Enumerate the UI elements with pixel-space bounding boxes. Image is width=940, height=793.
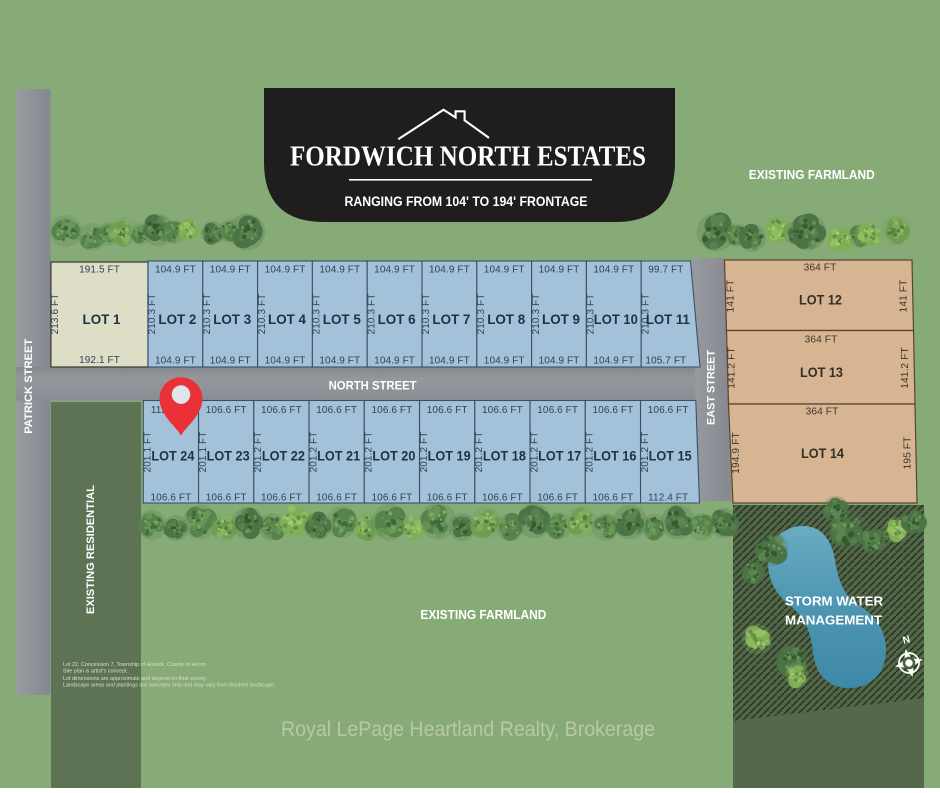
svg-text:104.9 FT: 104.9 FT (539, 355, 580, 366)
svg-text:LOT 1: LOT 1 (83, 311, 121, 327)
svg-text:210.3 FT: 210.3 FT (147, 294, 158, 335)
svg-text:194.9 FT: 194.9 FT (731, 432, 742, 474)
svg-text:LOT 19: LOT 19 (428, 448, 471, 464)
svg-text:106.6 FT: 106.6 FT (151, 493, 192, 504)
svg-text:LOT 10: LOT 10 (594, 311, 638, 327)
svg-text:210.3 FT: 210.3 FT (366, 294, 377, 335)
svg-text:364 FT: 364 FT (804, 262, 837, 273)
svg-text:104.9 FT: 104.9 FT (265, 355, 306, 366)
svg-text:LOT 3: LOT 3 (213, 311, 251, 327)
svg-text:Lot dimensions are approximate: Lot dimensions are approximate and depen… (63, 676, 207, 682)
svg-text:364 FT: 364 FT (805, 334, 838, 345)
svg-text:99.7 FT: 99.7 FT (648, 265, 683, 276)
svg-text:106.6 FT: 106.6 FT (206, 405, 247, 416)
svg-text:LOT 7: LOT 7 (432, 311, 470, 327)
svg-text:106.6 FT: 106.6 FT (261, 493, 302, 504)
svg-text:106.6 FT: 106.6 FT (537, 405, 578, 416)
svg-text:RANGING FROM 104' TO 194' FRON: RANGING FROM 104' TO 194' FRONTAGE (345, 194, 588, 209)
svg-text:Royal LePage Heartland Realty,: Royal LePage Heartland Realty, Brokerage (281, 718, 655, 741)
svg-text:LOT 15: LOT 15 (649, 448, 692, 464)
svg-text:LOT 22: LOT 22 (262, 448, 305, 464)
svg-text:104.9 FT: 104.9 FT (210, 265, 251, 276)
svg-text:104.9 FT: 104.9 FT (319, 265, 360, 276)
svg-text:210.3 FT: 210.3 FT (202, 294, 213, 335)
svg-text:Landscape areas and plantings: Landscape areas and plantings are concep… (63, 683, 275, 689)
svg-text:213.6 FT: 213.6 FT (50, 294, 61, 335)
svg-text:LOT 21: LOT 21 (317, 448, 360, 464)
svg-text:106.6 FT: 106.6 FT (482, 405, 523, 416)
svg-text:104.9 FT: 104.9 FT (210, 355, 251, 366)
svg-text:104.9 FT: 104.9 FT (593, 265, 634, 276)
svg-text:141.2 FT: 141.2 FT (727, 347, 738, 389)
svg-text:LOT 23: LOT 23 (207, 448, 250, 464)
svg-text:104.9 FT: 104.9 FT (484, 355, 525, 366)
svg-text:Site plan is artist's concept.: Site plan is artist's concept. (63, 669, 128, 675)
svg-text:210.3 FT: 210.3 FT (531, 294, 542, 335)
svg-text:LOT 16: LOT 16 (593, 448, 636, 464)
svg-text:104.9 FT: 104.9 FT (374, 355, 415, 366)
svg-text:LOT 9: LOT 9 (542, 311, 580, 327)
svg-text:106.6 FT: 106.6 FT (593, 493, 634, 504)
svg-text:EAST STREET: EAST STREET (706, 350, 718, 425)
svg-text:104.9 FT: 104.9 FT (429, 355, 470, 366)
svg-text:LOT 4: LOT 4 (268, 311, 306, 327)
svg-text:106.6 FT: 106.6 FT (427, 493, 468, 504)
svg-text:104.9 FT: 104.9 FT (155, 355, 196, 366)
svg-text:Lot 22, Concession 7, Township: Lot 22, Concession 7, Township of Howick… (63, 662, 206, 668)
svg-text:LOT 20: LOT 20 (372, 448, 415, 464)
svg-text:106.6 FT: 106.6 FT (648, 405, 689, 416)
svg-text:141.2 FT: 141.2 FT (900, 347, 911, 389)
svg-text:MANAGEMENT: MANAGEMENT (785, 613, 882, 628)
svg-text:LOT 18: LOT 18 (483, 448, 526, 464)
svg-text:210.3 FT: 210.3 FT (257, 294, 268, 335)
svg-text:191.5 FT: 191.5 FT (79, 264, 120, 275)
svg-text:STORM WATER: STORM WATER (785, 594, 883, 609)
svg-text:112.4 FT: 112.4 FT (648, 493, 688, 504)
svg-text:104.9 FT: 104.9 FT (265, 265, 306, 276)
svg-text:FORDWICH NORTH ESTATES: FORDWICH NORTH ESTATES (290, 141, 646, 173)
svg-text:LOT 11: LOT 11 (646, 311, 690, 327)
svg-text:LOT 24: LOT 24 (151, 448, 194, 464)
svg-text:EXISTING FARMLAND: EXISTING FARMLAND (749, 167, 875, 182)
svg-text:106.6 FT: 106.6 FT (537, 493, 578, 504)
svg-text:EXISTING RESIDENTIAL: EXISTING RESIDENTIAL (85, 485, 97, 614)
svg-text:LOT 5: LOT 5 (323, 311, 361, 327)
svg-text:210.3 FT: 210.3 FT (312, 294, 323, 335)
svg-text:EXISTING FARMLAND: EXISTING FARMLAND (420, 607, 546, 622)
svg-text:105.7 FT: 105.7 FT (645, 355, 686, 366)
svg-text:106.6 FT: 106.6 FT (482, 493, 523, 504)
svg-text:106.6 FT: 106.6 FT (316, 405, 357, 416)
svg-text:141 FT: 141 FT (899, 280, 910, 313)
svg-text:106.6 FT: 106.6 FT (261, 405, 302, 416)
svg-text:141 FT: 141 FT (726, 280, 737, 313)
svg-text:106.6 FT: 106.6 FT (206, 493, 247, 504)
svg-text:104.9 FT: 104.9 FT (539, 265, 580, 276)
svg-text:106.6 FT: 106.6 FT (316, 493, 357, 504)
svg-text:104.9 FT: 104.9 FT (319, 355, 360, 366)
svg-text:NORTH STREET: NORTH STREET (329, 379, 417, 392)
svg-text:LOT 8: LOT 8 (487, 311, 525, 327)
svg-text:104.9 FT: 104.9 FT (484, 265, 525, 276)
svg-text:210.3 FT: 210.3 FT (476, 294, 487, 335)
svg-text:364 FT: 364 FT (806, 406, 839, 417)
svg-text:192.1 FT: 192.1 FT (79, 355, 120, 366)
svg-text:106.6 FT: 106.6 FT (372, 493, 413, 504)
svg-text:104.9 FT: 104.9 FT (429, 265, 470, 276)
svg-text:LOT 6: LOT 6 (378, 311, 416, 327)
svg-text:LOT 17: LOT 17 (538, 448, 581, 464)
svg-text:106.6 FT: 106.6 FT (372, 405, 413, 416)
svg-text:104.9 FT: 104.9 FT (374, 265, 415, 276)
svg-text:LOT 2: LOT 2 (158, 311, 196, 327)
svg-text:106.6 FT: 106.6 FT (427, 405, 468, 416)
svg-text:195 FT: 195 FT (903, 437, 914, 470)
svg-text:104.9 FT: 104.9 FT (155, 265, 196, 276)
svg-text:210.3 FT: 210.3 FT (421, 294, 432, 335)
svg-text:LOT 13: LOT 13 (800, 364, 843, 380)
svg-text:106.6 FT: 106.6 FT (593, 405, 634, 416)
svg-text:LOT 12: LOT 12 (799, 292, 842, 308)
svg-text:104.9 FT: 104.9 FT (593, 355, 634, 366)
svg-text:LOT 14: LOT 14 (801, 445, 844, 461)
svg-text:PATRICK STREET: PATRICK STREET (23, 339, 35, 434)
